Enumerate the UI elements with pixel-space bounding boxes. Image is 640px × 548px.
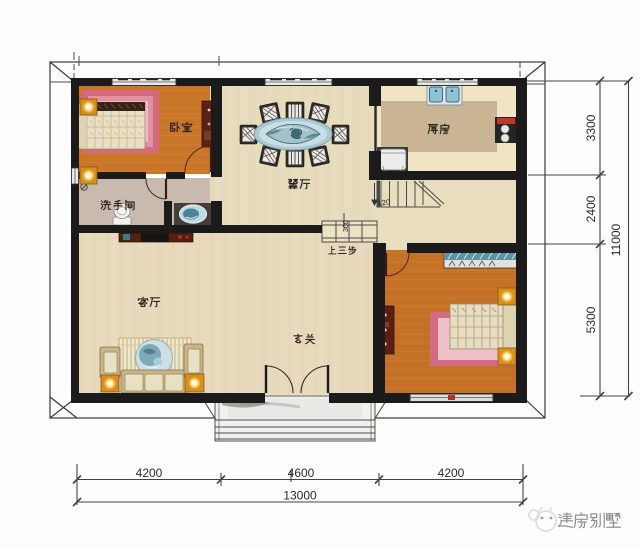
svg-text:4200: 4200 [136,466,163,480]
svg-text:3300: 3300 [584,114,598,141]
svg-text:2400: 2400 [584,195,598,222]
svg-text:120: 120 [377,197,391,208]
svg-text:300: 300 [343,220,350,232]
svg-text:13000: 13000 [283,489,317,503]
svg-text:4600: 4600 [288,466,315,480]
svg-text:5300: 5300 [584,306,598,333]
svg-text:11000: 11000 [609,223,623,256]
svg-text:4200: 4200 [438,466,465,480]
